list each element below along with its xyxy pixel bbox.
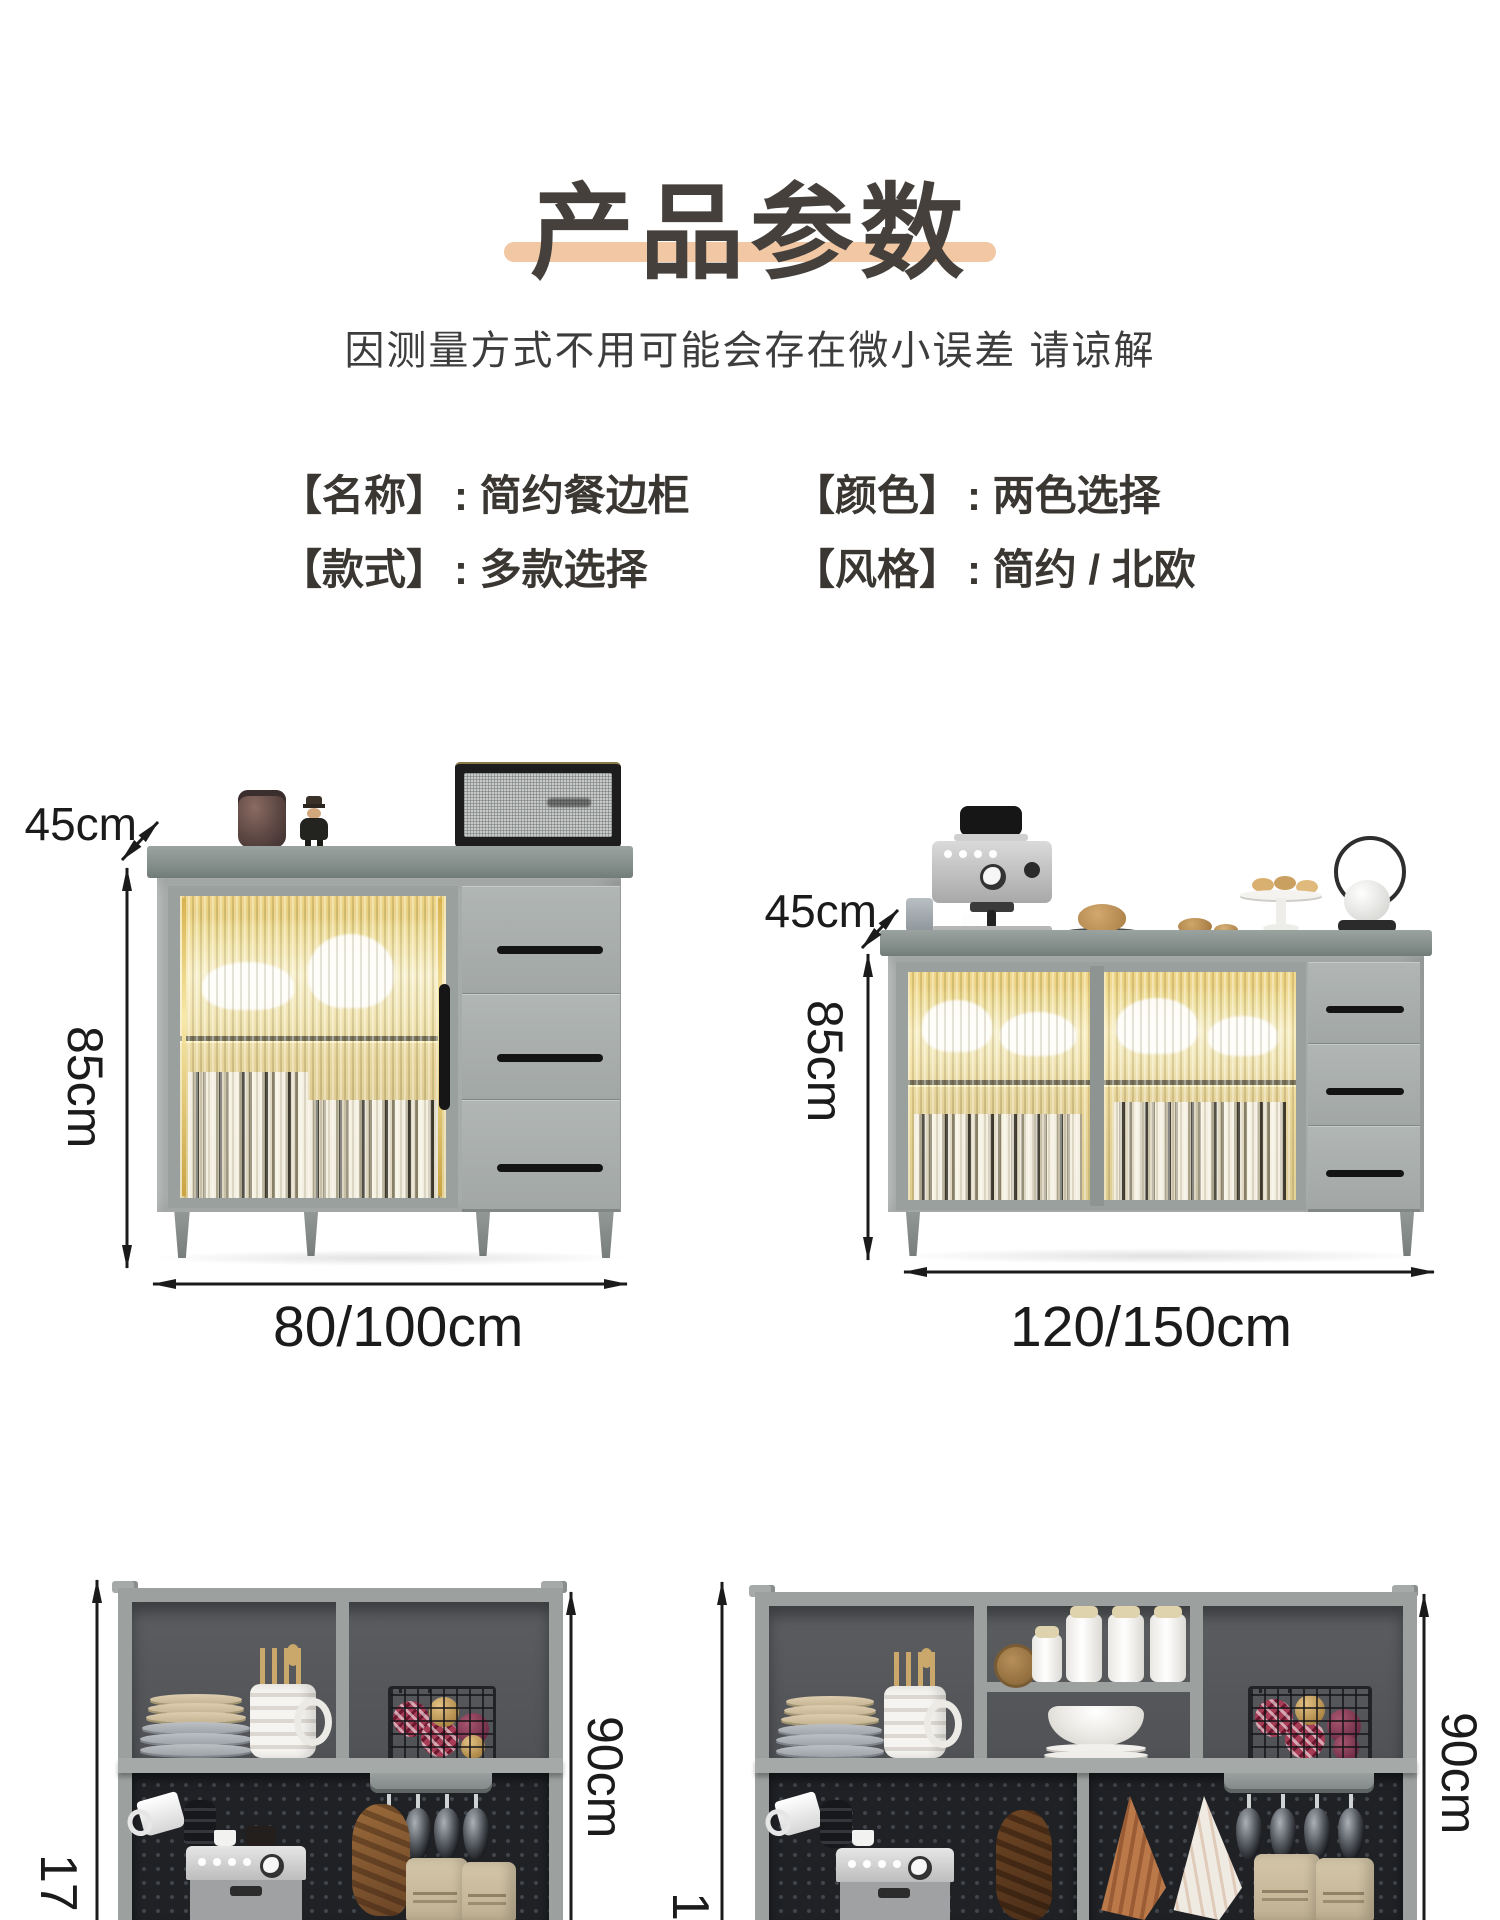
page-title: 产品参数 (0, 148, 1500, 299)
depth-arrow-small-sideboard (122, 822, 158, 860)
product-parameters-page: 产品参数 因测量方式不用可能会存在微小误差 请谅解 【名称】: 简约餐边柜 【颜… (0, 0, 1500, 1920)
depth-arrow-large-sideboard (862, 910, 898, 948)
